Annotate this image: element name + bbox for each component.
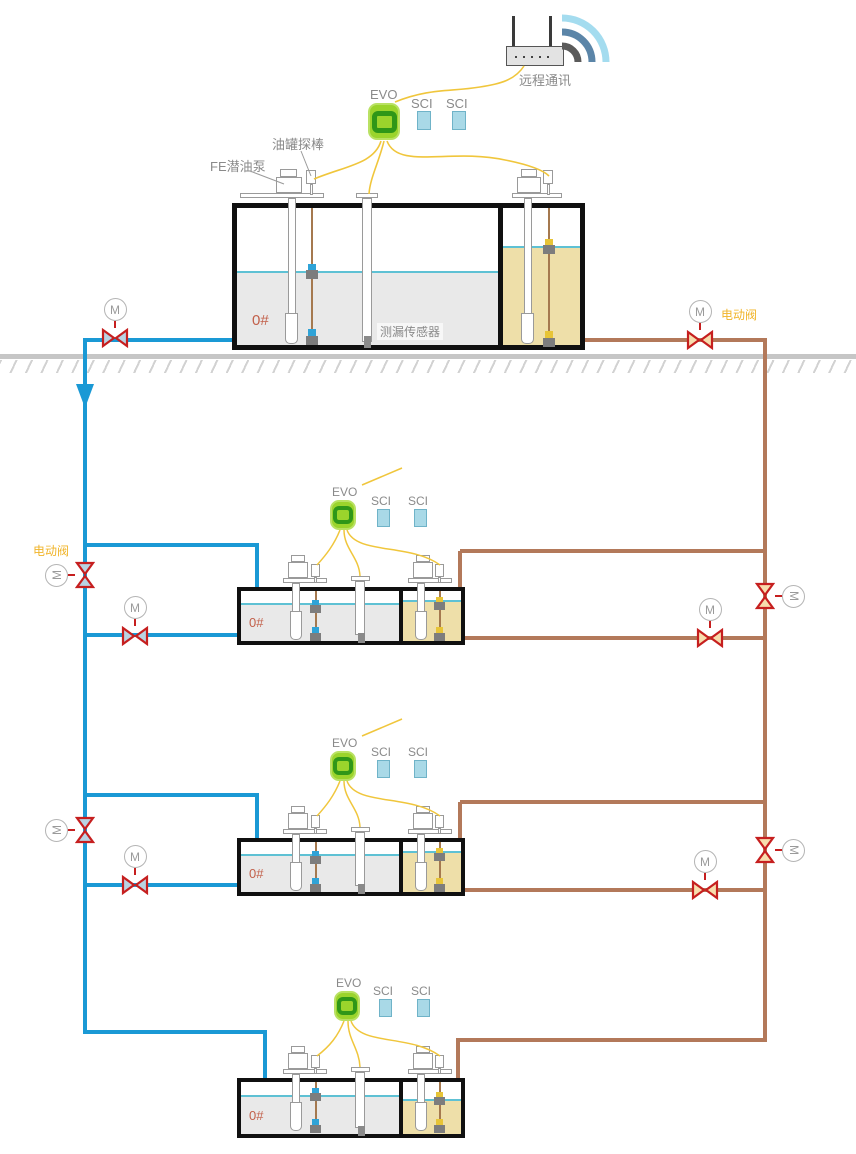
fuel-liquid: [403, 601, 461, 641]
evo-screen: [333, 506, 353, 524]
return-pipe: [585, 338, 767, 342]
evo-label: EVO: [332, 485, 357, 499]
evo-console: [368, 103, 400, 140]
probe-float-base: [310, 1125, 321, 1133]
valve-motor-indicator: M: [124, 845, 147, 868]
pump-body: [415, 611, 427, 640]
station-tank: 0#: [237, 838, 465, 896]
pump-motor-cap: [291, 806, 305, 813]
valve-motor-indicator: M: [782, 839, 805, 862]
probe-float-base: [434, 1097, 445, 1105]
sci-label: SCI: [373, 984, 393, 998]
leak-sensor-tip: [358, 1126, 365, 1136]
probe-head: [435, 564, 444, 577]
return-pipe: [460, 549, 765, 553]
valve-motor-indicator: M: [124, 596, 147, 619]
sci-label: SCI: [408, 494, 428, 508]
manhole-flange: [283, 578, 327, 583]
motor-valve: M: [121, 845, 149, 895]
pump-motor-cap: [291, 555, 305, 562]
probe-head: [311, 815, 320, 828]
probe-float-base: [543, 245, 555, 254]
probe-wire-link: [317, 1021, 344, 1056]
sci-label: SCI: [371, 494, 391, 508]
router-antenna: [512, 16, 515, 47]
fuel-liquid: [503, 247, 580, 345]
motor-valve: M: [696, 598, 724, 648]
manhole-flange: [283, 1069, 327, 1074]
pump-body: [285, 313, 298, 344]
pump-column: [292, 583, 300, 613]
manhole-flange: [408, 1069, 452, 1074]
leak-sensor-tip: [358, 633, 365, 643]
electric-valve-label: 电动阀: [721, 306, 757, 323]
probe-wire: [548, 208, 550, 345]
motor-valve: M: [691, 850, 719, 900]
fuel-liquid: [403, 1100, 461, 1134]
pump-motor-cap: [416, 1046, 430, 1053]
probe-head: [311, 564, 320, 577]
evo-console: [330, 500, 356, 530]
leak-sensor-tube: [355, 1072, 365, 1128]
supply-pipe: [85, 883, 240, 887]
comm-wire-stub: [362, 719, 402, 736]
sci-module: [452, 111, 466, 130]
leak-sensor-tube: [355, 832, 365, 886]
station-tank: 0#: [237, 1078, 465, 1138]
probe-float-base: [310, 856, 321, 864]
pump-column: [524, 198, 532, 315]
probe-head: [435, 815, 444, 828]
ground-line: [0, 354, 856, 359]
pump-body: [415, 862, 427, 891]
probe-float-base: [310, 1093, 321, 1101]
evo-console: [334, 991, 360, 1021]
valve-motor-indicator: M: [45, 819, 68, 842]
leak-wire-link: [344, 781, 360, 827]
manhole-flange: [283, 829, 327, 834]
probe-head: [306, 170, 316, 184]
fuel-grade-label: 0#: [249, 866, 263, 881]
probe-float-base: [306, 270, 318, 279]
valve-motor-indicator: M: [699, 598, 722, 621]
sci-label: SCI: [371, 745, 391, 759]
submersible-pump-label: FE潜油泵: [210, 156, 266, 175]
pump-column: [417, 1074, 425, 1104]
leak-sensor-tube: [355, 581, 365, 635]
evo-label: EVO: [332, 736, 357, 750]
motor-valve: M: [45, 561, 95, 589]
fuel-grade-label: 0#: [249, 615, 263, 630]
sci-module: [414, 760, 427, 778]
motor-valve: M: [686, 300, 714, 350]
evo-screen: [333, 757, 353, 775]
comm-wire-stub: [362, 468, 402, 485]
supply-pipe: [85, 1030, 267, 1034]
pump-body: [290, 611, 302, 640]
valve-motor-indicator: M: [104, 298, 127, 321]
probe-float: [308, 329, 316, 336]
submersible-pump-motor: [276, 177, 302, 193]
sci-module: [417, 111, 431, 130]
fuel-station-diagram: 0# EVO SCI SCI 油罐探棒 FE潜油泵 测漏传感器 远程通讯 电动阀…: [0, 0, 856, 1154]
valve-motor-indicator: M: [694, 850, 717, 873]
motor-valve: M: [45, 816, 95, 844]
supply-pipe: [83, 338, 87, 1034]
probe-float-base: [434, 884, 445, 892]
pump-column: [292, 1074, 300, 1104]
probe-stem: [438, 577, 441, 583]
liquid-surface: [403, 1099, 461, 1101]
valve-motor-indicator: M: [45, 564, 68, 587]
evo-label: EVO: [370, 87, 397, 102]
motor-valve: M: [121, 596, 149, 646]
probe-stem: [314, 1068, 317, 1074]
manhole-flange: [408, 829, 452, 834]
router-antenna: [549, 16, 552, 47]
probe-wire-link: [314, 141, 381, 179]
supply-pipe: [85, 793, 259, 797]
return-pipe: [460, 800, 765, 804]
probe-float-base: [543, 338, 555, 347]
evo-screen: [337, 997, 357, 1015]
liquid-surface: [503, 246, 580, 248]
submersible-pump-motor: [413, 562, 433, 578]
sci-label: SCI: [408, 745, 428, 759]
probe-stem: [314, 577, 317, 583]
wifi-signal-icon: [562, 18, 606, 62]
valve-motor-indicator: M: [782, 585, 805, 608]
pump-column: [292, 834, 300, 864]
leak-sensor-tip: [358, 884, 365, 894]
leak-wire-link: [344, 530, 360, 576]
ground-hatching: [0, 360, 856, 373]
leak-sensor-tip: [364, 336, 371, 348]
leak-sensor-label: 测漏传感器: [377, 323, 443, 340]
pump-column: [417, 834, 425, 864]
sci-module: [414, 509, 427, 527]
sci-module: [379, 999, 392, 1017]
pump-motor-cap: [416, 806, 430, 813]
liquid-surface: [403, 851, 461, 853]
router-leds: [515, 56, 555, 58]
remote-comm-label: 远程通讯: [519, 70, 571, 89]
probe-float-base: [306, 336, 318, 345]
pump-motor-cap: [521, 169, 537, 177]
return-pipe: [763, 338, 767, 1042]
pump-body: [521, 313, 534, 344]
probe-float-base: [310, 884, 321, 892]
sci-label: SCI: [446, 96, 468, 111]
evo-console: [330, 751, 356, 781]
submersible-pump-motor: [288, 813, 308, 829]
liquid-surface: [403, 600, 461, 602]
probe-wire-link: [317, 781, 340, 816]
fuel-liquid: [403, 852, 461, 892]
leak-wire-link: [369, 141, 384, 194]
pump-body: [415, 1102, 427, 1131]
submersible-pump-motor: [517, 177, 541, 193]
station-tank: 0#: [237, 587, 465, 645]
submersible-pump-motor: [288, 562, 308, 578]
sci-label: SCI: [411, 984, 431, 998]
submersible-pump-motor: [413, 1053, 433, 1069]
probe-stem: [547, 184, 550, 195]
pump-motor-cap: [416, 555, 430, 562]
submersible-pump-motor: [288, 1053, 308, 1069]
motor-valve: M: [101, 298, 129, 348]
pump-body: [290, 862, 302, 891]
probe-stem: [438, 828, 441, 834]
supply-pipe: [85, 633, 240, 637]
probe-stem: [438, 1068, 441, 1074]
probe-float-base: [434, 633, 445, 641]
probe-float-base: [434, 602, 445, 610]
supply-pipe: [85, 543, 259, 547]
sci-module: [377, 760, 390, 778]
pump-column: [288, 198, 296, 315]
evo-screen: [372, 111, 397, 133]
probe-float-base: [310, 633, 321, 641]
return-pipe: [458, 1038, 767, 1042]
fuel-grade-label: 0#: [252, 312, 269, 329]
probe-float: [545, 331, 553, 338]
pump-column: [417, 583, 425, 613]
motor-valve: M: [755, 582, 805, 610]
sci-label: SCI: [411, 96, 433, 111]
evo-label: EVO: [336, 976, 361, 990]
probe-head: [435, 1055, 444, 1068]
manhole-flange: [408, 578, 452, 583]
pump-motor-cap: [280, 169, 297, 177]
submersible-pump-motor: [413, 813, 433, 829]
probe-float-base: [434, 1125, 445, 1133]
manhole-flange: [512, 193, 562, 198]
probe-head: [543, 170, 553, 184]
probe-wire-link: [317, 530, 340, 565]
sci-module: [377, 509, 390, 527]
electric-valve-label: 电动阀: [33, 542, 69, 559]
sci-module: [417, 999, 430, 1017]
probe-float-base: [310, 605, 321, 613]
probe-stem: [314, 828, 317, 834]
wireless-router: [506, 46, 564, 66]
leak-sensor-tube: [362, 198, 372, 342]
probe-head: [311, 1055, 320, 1068]
motor-valve: M: [755, 836, 805, 864]
probe-stem: [310, 184, 313, 195]
valve-motor-indicator: M: [689, 300, 712, 323]
return-pipe: [465, 888, 765, 892]
pump-motor-cap: [291, 1046, 305, 1053]
fuel-grade-label: 0#: [249, 1108, 263, 1123]
probe-float-base: [434, 853, 445, 861]
pump-body: [290, 1102, 302, 1131]
leak-wire-link: [348, 1021, 360, 1067]
tank-probe-label: 油罐探棒: [272, 134, 324, 153]
